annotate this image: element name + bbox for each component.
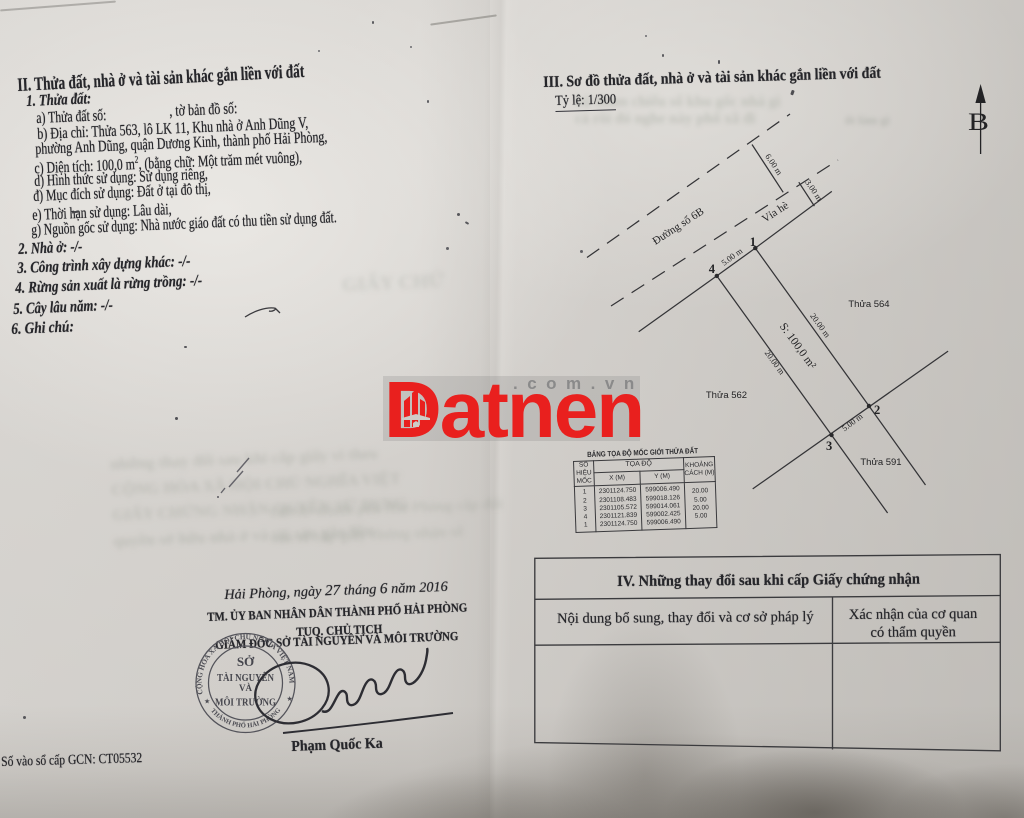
svg-text:★: ★ — [204, 698, 210, 706]
